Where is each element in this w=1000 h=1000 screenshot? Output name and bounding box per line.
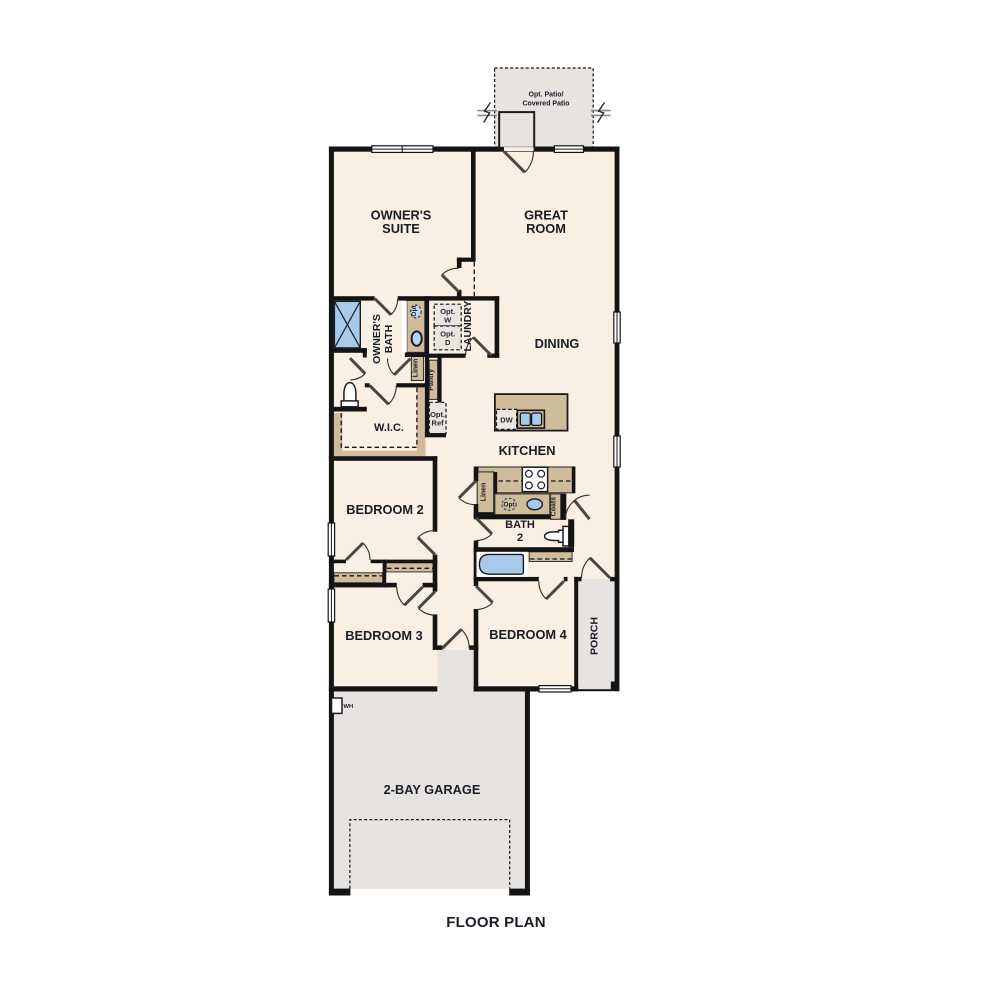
- svg-text:2: 2: [517, 532, 523, 544]
- svg-text:SUITE: SUITE: [382, 221, 420, 236]
- svg-text:FLOOR PLAN: FLOOR PLAN: [446, 914, 546, 931]
- svg-text:W: W: [444, 316, 452, 325]
- svg-text:BEDROOM 2: BEDROOM 2: [346, 502, 424, 517]
- svg-text:D: D: [445, 338, 451, 347]
- svg-text:DW: DW: [500, 416, 513, 425]
- svg-text:Linen: Linen: [412, 359, 419, 378]
- svg-text:BEDROOM 3: BEDROOM 3: [345, 628, 423, 643]
- svg-text:OWNER'S: OWNER'S: [371, 314, 383, 364]
- svg-text:Opt: Opt: [503, 502, 515, 509]
- svg-text:BATH: BATH: [505, 519, 535, 531]
- svg-text:WH: WH: [344, 704, 354, 710]
- svg-text:DINING: DINING: [535, 336, 580, 351]
- svg-text:BATH: BATH: [383, 325, 395, 353]
- svg-text:BEDROOM 4: BEDROOM 4: [489, 627, 567, 642]
- svg-text:Ref: Ref: [432, 419, 445, 428]
- svg-text:LAUNDRY: LAUNDRY: [462, 301, 474, 352]
- svg-text:ROOM: ROOM: [526, 221, 566, 236]
- svg-text:Opt. Patio/: Opt. Patio/: [529, 92, 564, 99]
- svg-text:PORCH: PORCH: [589, 617, 601, 655]
- svg-text:Opt: Opt: [411, 305, 418, 317]
- svg-text:Linen: Linen: [480, 483, 487, 502]
- svg-text:Coats: Coats: [551, 497, 558, 517]
- svg-text:2-BAY GARAGE: 2-BAY GARAGE: [384, 782, 481, 797]
- svg-text:Covered Patio: Covered Patio: [522, 101, 569, 108]
- svg-text:W.I.C.: W.I.C.: [374, 422, 404, 434]
- svg-text:Pantry: Pantry: [428, 369, 435, 391]
- svg-text:KITCHEN: KITCHEN: [499, 443, 556, 458]
